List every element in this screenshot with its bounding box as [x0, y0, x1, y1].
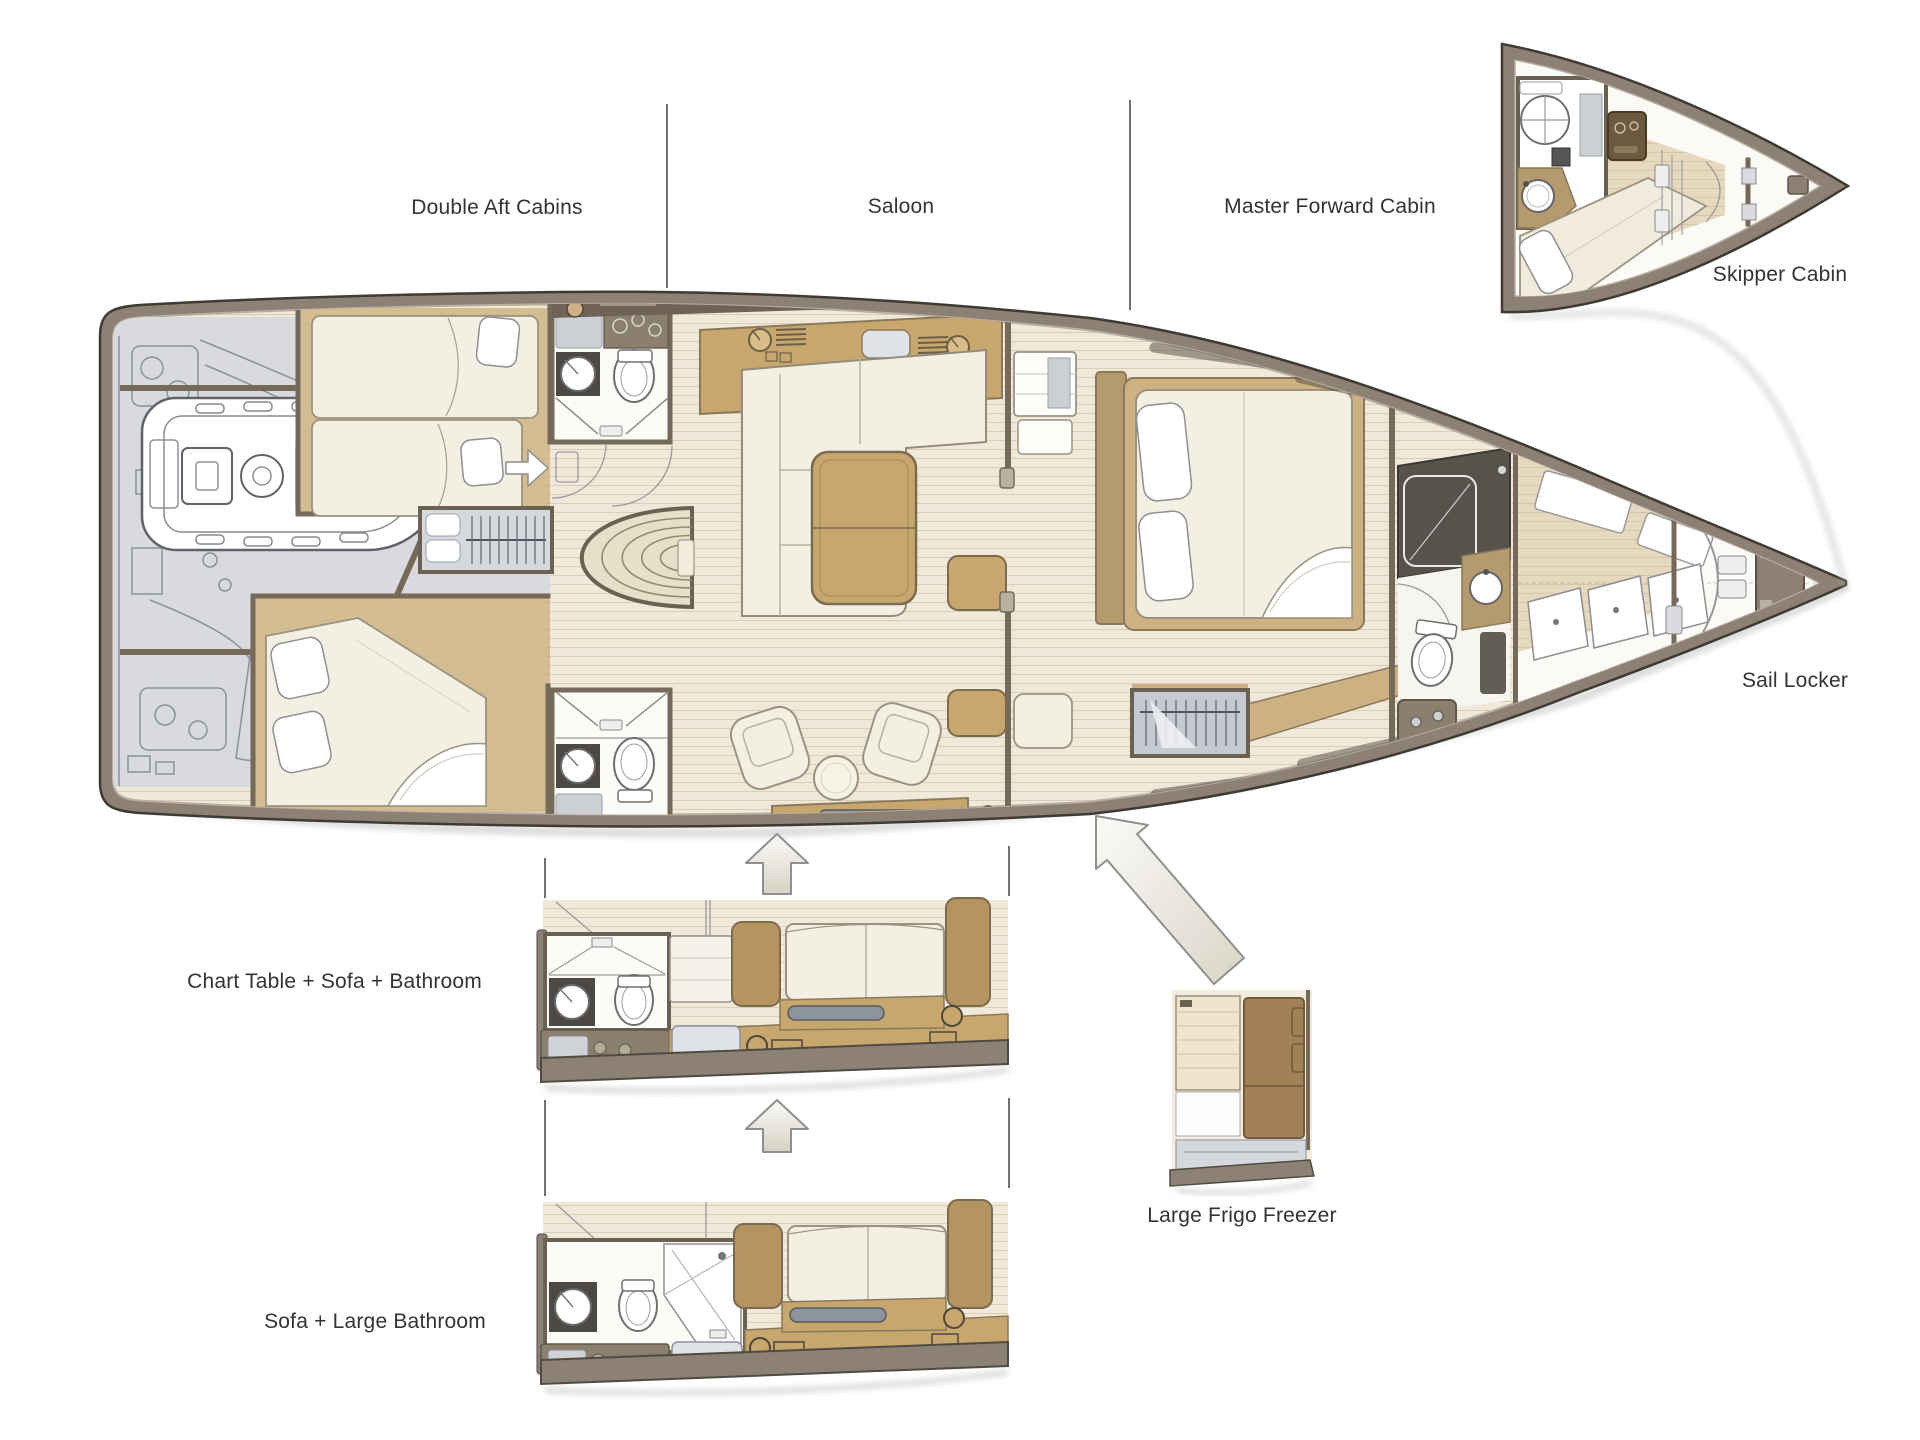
option-plan-sofa-bathroom [537, 1200, 1008, 1393]
chart-table [670, 936, 732, 1002]
outboard-motor [182, 448, 232, 504]
arrow-up-icon [746, 834, 808, 894]
yacht-layout-page: { "page": { "title": "Yacht interior dec… [0, 0, 1920, 1440]
pillow [269, 635, 332, 701]
label-option-chart-table: Chart Table + Sofa + Bathroom [182, 969, 482, 995]
aft-bathroom-starboard [552, 690, 670, 820]
frigo-freezer-unit [1244, 998, 1304, 1138]
vanity-dresser [1014, 352, 1076, 454]
arrow-up-icon [746, 1100, 808, 1152]
pillow [460, 437, 504, 486]
label-sail-locker: Sail Locker [1665, 668, 1920, 694]
label-saloon: Saloon [701, 194, 1101, 220]
wardrobe [1132, 684, 1248, 756]
windlass [1718, 556, 1746, 574]
aft-cabin-port [298, 304, 550, 516]
label-option-large-frigo-freezer: Large Frigo Freezer [1042, 1203, 1442, 1229]
main-hull [100, 286, 1860, 842]
sink [1470, 572, 1502, 604]
option1-bathroom [545, 934, 669, 1030]
pillow [476, 316, 521, 368]
frigo-freezer-plan [1170, 990, 1314, 1193]
saloon-table [812, 452, 916, 604]
coffee-table [814, 756, 858, 800]
master-bed [1124, 378, 1364, 630]
pillow [1135, 402, 1193, 502]
pillow [271, 709, 334, 775]
option2-bathroom [545, 1240, 745, 1352]
label-master-forward-cabin: Master Forward Cabin [1130, 194, 1530, 220]
label-option-sofa-large-bathroom: Sofa + Large Bathroom [186, 1309, 486, 1335]
seat [1014, 694, 1072, 748]
hanging-locker [420, 508, 552, 572]
pillow [1138, 510, 1195, 603]
aft-cabin-starboard [253, 596, 550, 812]
arrow-diagonal-icon [1096, 816, 1244, 984]
label-skipper-cabin: Skipper Cabin [1580, 262, 1920, 288]
label-double-aft-cabins: Double Aft Cabins [297, 195, 697, 221]
toilet [614, 738, 654, 790]
option-plan-chart-table [537, 898, 1008, 1091]
galley-sink [862, 330, 910, 358]
